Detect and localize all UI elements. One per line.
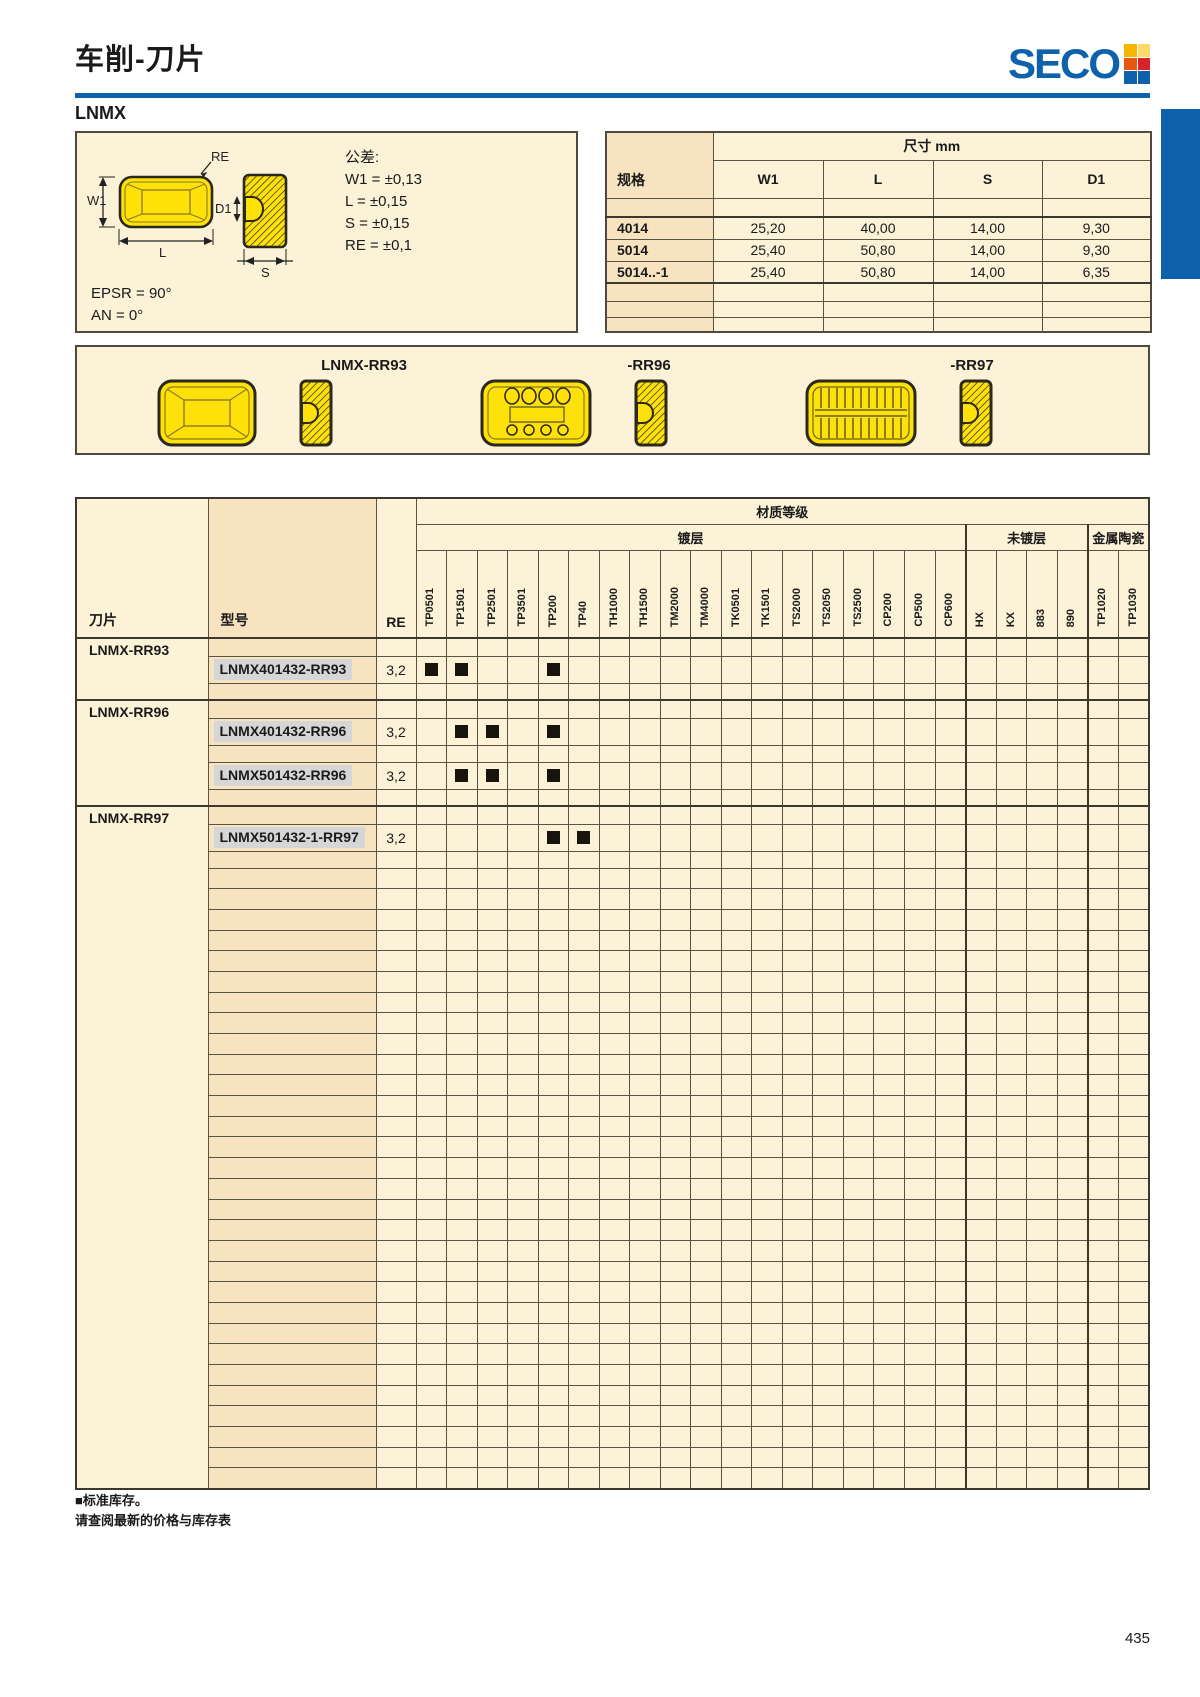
diagram-label-re: RE: [211, 149, 229, 164]
grade-cell: [416, 851, 447, 868]
empty-row: [76, 971, 1149, 992]
grade-cell: [569, 683, 600, 700]
grade-cell: [966, 1427, 997, 1448]
grade-cell: [447, 745, 478, 762]
stock-mark: [455, 725, 468, 738]
grade-cell: [1027, 1199, 1058, 1220]
dims-data-row: 401425,2040,0014,009,30: [606, 217, 1151, 239]
grade-cell: [1118, 683, 1149, 700]
grade-cell: [1118, 700, 1149, 718]
grade-cell: [721, 1365, 752, 1386]
grade-cell: [1088, 868, 1119, 889]
grade-name-label: TK0501: [731, 588, 743, 627]
grade-cell: [538, 683, 569, 700]
grade-cell: [966, 909, 997, 930]
grade-cell: [477, 1137, 508, 1158]
grade-cell: [1088, 851, 1119, 868]
grade-cell: [691, 1096, 722, 1117]
value-cell: 50,80: [823, 261, 933, 283]
grade-cell: [477, 1240, 508, 1261]
grade-cell: [721, 971, 752, 992]
grade-cell: [874, 992, 905, 1013]
grade-name-cell: TM2000: [660, 550, 691, 638]
grade-cell: [966, 1240, 997, 1261]
grade-cell: [935, 971, 966, 992]
grade-cell: [630, 1116, 661, 1137]
grade-cell: [416, 1116, 447, 1137]
grade-cell: [691, 700, 722, 718]
grade-cell: [843, 851, 874, 868]
grade-cell: [966, 1054, 997, 1075]
material-grade-header: 材质等级: [416, 498, 1149, 524]
grade-cell: [630, 909, 661, 930]
value-cell: [823, 199, 933, 217]
grade-name-label: TP2501: [487, 588, 499, 627]
grade-name-label: TP1030: [1128, 588, 1140, 627]
tolerance-title: 公差:: [345, 147, 422, 169]
grade-name-cell: TP1501: [447, 550, 478, 638]
grade-cell: [508, 638, 539, 656]
empty-row: [76, 992, 1149, 1013]
grade-cell: [1027, 951, 1058, 972]
grade-cell: [416, 1323, 447, 1344]
value-cell: 6,35: [1042, 261, 1151, 283]
grade-cell: [447, 889, 478, 910]
grade-cell: [905, 762, 936, 789]
page-edge-tab: [1161, 109, 1200, 279]
grade-cell: [966, 683, 997, 700]
grade-cell: [752, 1096, 783, 1117]
grade-cell: [782, 638, 813, 656]
grade-cell: [966, 1137, 997, 1158]
grade-cell: [966, 1220, 997, 1241]
grade-cell: [599, 909, 630, 930]
insert-top-view-rr97: [805, 379, 917, 447]
grade-cell: [660, 1158, 691, 1179]
grade-cell: [660, 1116, 691, 1137]
grade-cell: [874, 971, 905, 992]
grade-cell: [874, 889, 905, 910]
grade-cell: [721, 806, 752, 824]
grade-cell: [416, 1447, 447, 1468]
grade-cell: [752, 762, 783, 789]
grade-cell: [1027, 745, 1058, 762]
spec-cell: 5014: [606, 239, 713, 261]
grade-cell: [691, 1344, 722, 1365]
grade-cell: [691, 930, 722, 951]
empty-row: [76, 909, 1149, 930]
grade-cell: [660, 806, 691, 824]
grade-cell: [447, 1427, 478, 1448]
grade-cell: [935, 1096, 966, 1117]
insert-group-label: LNMX-RR97: [76, 806, 208, 1489]
grade-cell: [691, 1075, 722, 1096]
grade-cell: [416, 951, 447, 972]
grade-cell: [599, 1158, 630, 1179]
grade-cell: [538, 1447, 569, 1468]
grade-cell: [416, 1137, 447, 1158]
grade-cell: [447, 1137, 478, 1158]
grade-cell: [630, 745, 661, 762]
grade-name-label: HX: [975, 612, 987, 627]
grade-cell: [508, 971, 539, 992]
grade-cell: [874, 1013, 905, 1034]
grade-cell: [966, 1261, 997, 1282]
grade-cell: [447, 824, 478, 851]
grade-cell: [721, 1137, 752, 1158]
grade-cell: [1088, 806, 1119, 824]
re-cell: [376, 1034, 416, 1055]
dims-header-row: 规格尺寸 mm: [606, 132, 1151, 160]
grade-cell: [1118, 718, 1149, 745]
grade-cell: [935, 1427, 966, 1448]
re-cell: [376, 1427, 416, 1448]
grade-cell: [966, 718, 997, 745]
grade-cell: [996, 789, 1027, 806]
stock-mark: [455, 769, 468, 782]
re-cell: [376, 1178, 416, 1199]
grade-cell: [691, 1158, 722, 1179]
grade-cell: [1088, 1034, 1119, 1055]
grade-cell: [477, 656, 508, 683]
grade-cell: [752, 1427, 783, 1448]
grade-cell: [599, 1096, 630, 1117]
grade-cell: [721, 1096, 752, 1117]
grade-cell: [630, 1447, 661, 1468]
empty-row: [76, 1240, 1149, 1261]
model-cell-empty: [208, 1013, 376, 1034]
re-cell: [376, 1096, 416, 1117]
grade-cell: [1118, 1240, 1149, 1261]
grade-cell: [996, 1385, 1027, 1406]
grade-cell: [660, 1013, 691, 1034]
grade-cell: [935, 700, 966, 718]
stock-mark: [486, 725, 499, 738]
grade-cell: [874, 700, 905, 718]
grade-cell: [538, 1406, 569, 1427]
grade-cell: [721, 1075, 752, 1096]
grade-cell: [691, 806, 722, 824]
logo-square: [1138, 71, 1151, 84]
grade-name-label: TP200: [548, 595, 560, 627]
model-cell-empty: [208, 1447, 376, 1468]
grade-cell: [477, 1096, 508, 1117]
grade-cell: [996, 638, 1027, 656]
grade-cell: [813, 1468, 844, 1489]
grade-cell: [996, 909, 1027, 930]
empty-row: [76, 951, 1149, 972]
grade-cell: [660, 638, 691, 656]
grade-cell: [630, 1468, 661, 1489]
grade-cell: [874, 1365, 905, 1386]
grade-cell: [416, 1096, 447, 1117]
grade-cell: [1118, 656, 1149, 683]
grade-cell: [752, 1158, 783, 1179]
grade-cell: [599, 1137, 630, 1158]
insert-group-label: LNMX-RR93: [76, 638, 208, 700]
grade-cell: [477, 1302, 508, 1323]
grade-name-label: TP0501: [425, 588, 437, 627]
grade-cell: [691, 1137, 722, 1158]
grade-cell: [508, 992, 539, 1013]
grade-cell: [538, 1240, 569, 1261]
grade-cell: [630, 1323, 661, 1344]
grade-cell: [1118, 909, 1149, 930]
re-cell: [376, 1406, 416, 1427]
grade-cell: [935, 806, 966, 824]
grade-cell: [538, 1344, 569, 1365]
grade-cell: [599, 745, 630, 762]
grade-cell: [599, 1054, 630, 1075]
grade-cell: [782, 1137, 813, 1158]
grade-cell: [813, 683, 844, 700]
grade-cell: [843, 1178, 874, 1199]
grade-cell: [905, 1013, 936, 1034]
grade-cell: [874, 1344, 905, 1365]
grade-cell: [996, 1406, 1027, 1427]
grade-cell: [874, 1323, 905, 1344]
stock-note: ■标准库存。: [75, 1490, 148, 1509]
grade-cell: [1057, 851, 1088, 868]
grade-cell: [1118, 1282, 1149, 1303]
grade-cell: [935, 1158, 966, 1179]
grade-cell: [1118, 1178, 1149, 1199]
grade-cell: [721, 1054, 752, 1075]
grade-cell: [996, 683, 1027, 700]
grade-cell: [874, 1406, 905, 1427]
grade-cell: [477, 851, 508, 868]
grade-cell: [538, 1468, 569, 1489]
grade-name-cell: TM4000: [691, 550, 722, 638]
grade-cell: [721, 1468, 752, 1489]
model-cell-empty: [208, 806, 376, 824]
grade-cell: [508, 1220, 539, 1241]
grade-cell: [630, 1385, 661, 1406]
grade-name-cell: KX: [996, 550, 1027, 638]
grade-cell: [691, 1365, 722, 1386]
model-row: LNMX501432-1-RR973,2: [76, 824, 1149, 851]
model-cell-empty: [208, 1054, 376, 1075]
grade-cell: [630, 971, 661, 992]
dims-empty-row: [606, 199, 1151, 217]
grade-name-cell: TP1020: [1088, 550, 1119, 638]
grade-cell: [905, 1323, 936, 1344]
re-cell: [376, 638, 416, 656]
grade-cell: [599, 1365, 630, 1386]
value-cell: 25,20: [713, 217, 823, 239]
grade-cell: [508, 1468, 539, 1489]
tolerance-item: L = ±0,15: [345, 191, 422, 213]
grade-cell: [1027, 971, 1058, 992]
grade-cell: [538, 1178, 569, 1199]
grade-cell: [966, 745, 997, 762]
grade-cell: [1088, 1137, 1119, 1158]
grade-cell: [874, 789, 905, 806]
grade-cell: [996, 1178, 1027, 1199]
grade-cell: [508, 718, 539, 745]
grade-cell: [874, 718, 905, 745]
diagram-label-d1: D1: [215, 201, 232, 216]
grade-cell: [996, 1054, 1027, 1075]
re-cell: [376, 1054, 416, 1075]
grade-cell: [874, 1447, 905, 1468]
grade-cell: [508, 700, 539, 718]
grade-cell: [447, 992, 478, 1013]
grade-cell: [477, 1385, 508, 1406]
value-cell: [1042, 199, 1151, 217]
grade-cell: [599, 1220, 630, 1241]
dims-column-header: W1: [713, 160, 823, 198]
re-cell: [376, 1075, 416, 1096]
grade-cell: [599, 1261, 630, 1282]
grade-cell: [843, 1220, 874, 1241]
grade-cell: [905, 638, 936, 656]
grade-cell: [538, 1013, 569, 1034]
grade-cell: [1057, 1220, 1088, 1241]
grade-cell: [935, 851, 966, 868]
grade-cell: [752, 806, 783, 824]
re-cell: [376, 1468, 416, 1489]
grade-cell: [538, 1282, 569, 1303]
grade-cell: [416, 930, 447, 951]
grade-cell: [1027, 909, 1058, 930]
grade-cell: [905, 806, 936, 824]
grade-cell: [1088, 1075, 1119, 1096]
logo-square: [1124, 58, 1137, 71]
grade-cell: [905, 851, 936, 868]
grade-cell: [660, 1220, 691, 1241]
model-row: LNMX401432-RR933,2: [76, 656, 1149, 683]
grade-cell: [1027, 851, 1058, 868]
grade-cell: [874, 1261, 905, 1282]
grade-cell: [905, 971, 936, 992]
grade-cell: [477, 992, 508, 1013]
grade-cell: [599, 656, 630, 683]
grade-cell: [874, 1075, 905, 1096]
grade-cell: [660, 971, 691, 992]
grade-cell: [721, 700, 752, 718]
grade-cell: [843, 1054, 874, 1075]
grade-cell: [538, 718, 569, 745]
insert-side-view-rr93: [299, 379, 333, 447]
grade-cell: [782, 851, 813, 868]
grade-cell: [691, 789, 722, 806]
grade-cell: [477, 718, 508, 745]
grade-cell: [1057, 868, 1088, 889]
grade-cell: [599, 718, 630, 745]
grade-cell: [905, 1468, 936, 1489]
profile-label-rr93: LNMX-RR93: [321, 357, 407, 374]
grade-cell: [599, 1385, 630, 1406]
grade-cell: [813, 1199, 844, 1220]
grade-cell: [630, 638, 661, 656]
grade-cell: [630, 824, 661, 851]
grade-cell: [630, 1282, 661, 1303]
grade-cell: [721, 1261, 752, 1282]
grade-cell: [843, 930, 874, 951]
model-cell-empty: [208, 1220, 376, 1241]
re-cell: [376, 1385, 416, 1406]
grade-cell: [1027, 1282, 1058, 1303]
grade-cell: [905, 1034, 936, 1055]
spacer-row: [76, 851, 1149, 868]
grade-cell: [1057, 1199, 1088, 1220]
grade-cell: [843, 656, 874, 683]
grade-cell: [905, 889, 936, 910]
grade-cell: [416, 909, 447, 930]
grade-cell: [752, 971, 783, 992]
grade-cell: [599, 1427, 630, 1448]
grade-cell: [843, 1013, 874, 1034]
grade-cell: [538, 889, 569, 910]
grade-cell: [843, 1365, 874, 1386]
grade-cell: [447, 656, 478, 683]
grade-cell: [874, 1178, 905, 1199]
grade-cell: [782, 1240, 813, 1261]
grade-cell: [569, 1282, 600, 1303]
grade-cell: [782, 718, 813, 745]
grade-cell: [1088, 745, 1119, 762]
grade-cell: [569, 868, 600, 889]
spec-header-cell: 规格: [606, 132, 713, 199]
grade-cell: [721, 745, 752, 762]
grade-cell: [996, 1261, 1027, 1282]
grade-cell: [935, 656, 966, 683]
grade-cell: [660, 1199, 691, 1220]
grade-cell: [660, 745, 691, 762]
grade-cell: [843, 1282, 874, 1303]
grade-cell: [721, 1344, 752, 1365]
grade-cell: [1088, 930, 1119, 951]
grade-cell: [935, 683, 966, 700]
grade-cell: [630, 1013, 661, 1034]
grade-cell: [966, 1302, 997, 1323]
grade-cell: [477, 824, 508, 851]
grade-cell: [813, 656, 844, 683]
grade-cell: [905, 656, 936, 683]
grade-cell: [874, 951, 905, 972]
empty-row: [76, 1158, 1149, 1179]
grade-cell: [691, 992, 722, 1013]
grade-cell: [691, 1385, 722, 1406]
grade-cell: [752, 638, 783, 656]
grade-cell: [1027, 1323, 1058, 1344]
grade-cell: [935, 1178, 966, 1199]
grade-cell: [508, 868, 539, 889]
grade-cell: [630, 789, 661, 806]
grade-cell: [1088, 1013, 1119, 1034]
grade-cell: [752, 718, 783, 745]
grade-cell: [782, 1096, 813, 1117]
grade-cell: [843, 1344, 874, 1365]
stock-mark: [547, 831, 560, 844]
grade-cell: [782, 1178, 813, 1199]
empty-row: [76, 1261, 1149, 1282]
grade-cell: [721, 1240, 752, 1261]
grade-cell: [1118, 1468, 1149, 1489]
stock-mark: [547, 663, 560, 676]
grade-cell: [630, 683, 661, 700]
grade-cell: [1118, 1220, 1149, 1241]
empty-row: [76, 868, 1149, 889]
grade-cell: [599, 1034, 630, 1055]
grade-cell: [813, 1034, 844, 1055]
grade-name-label: TP1501: [456, 588, 468, 627]
grade-cell: [416, 1013, 447, 1034]
price-note: 请查阅最新的价格与库存表: [75, 1510, 231, 1529]
grade-cell: [966, 806, 997, 824]
grade-cell: [1057, 1013, 1088, 1034]
